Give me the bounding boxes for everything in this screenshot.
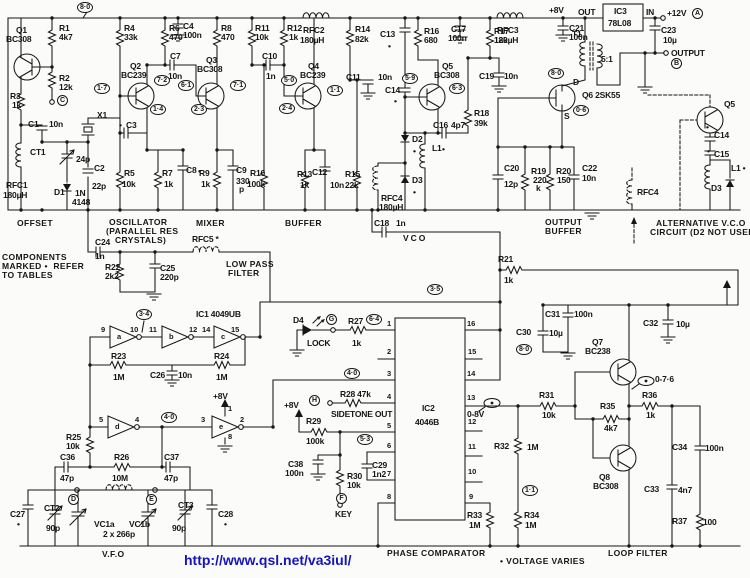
label-c12-value: 10n [330, 181, 344, 190]
label-c28: C28 [218, 510, 233, 519]
label-r5-value: 10k [122, 180, 136, 189]
ic1-gate-d: d [115, 423, 120, 431]
label-c4-value: 100n [183, 31, 202, 40]
terminal-d: D [68, 494, 79, 505]
label-r10: R10 [250, 169, 265, 178]
label-c24-value: 1n [95, 252, 105, 261]
label-output: OUTPUT [671, 49, 705, 58]
label-c2-value: 22p [92, 182, 106, 191]
section-output-buffer-2: BUFFER [545, 227, 582, 236]
label-r35: R35 [600, 402, 615, 411]
section-offset: OFFSET [17, 219, 53, 228]
label-c31: C31 [545, 310, 560, 319]
label-c17-value: 100n [448, 34, 467, 43]
label-d4: D4 [293, 316, 303, 325]
label-c30-value: 10µ [549, 329, 563, 338]
ic2-pin-12: 12 [468, 418, 476, 426]
voltage-7-2: 7·2 [154, 75, 170, 86]
label-c33: C33 [644, 485, 659, 494]
label-c32-value: 10µ [676, 320, 690, 329]
label-r29-value: 100k [306, 437, 324, 446]
label-c11: C11 [346, 73, 361, 82]
label-ic3-type: 78L08 [608, 19, 631, 28]
label-r13-value: 1k [300, 181, 309, 190]
label-r27-value: 1k [352, 339, 361, 348]
label-t1-ratio: 5:1 [601, 55, 613, 64]
voltage-6-3: 6·3 [449, 83, 465, 94]
label-r20-value: 150 [557, 176, 571, 185]
label-vc1b: VC1b [129, 520, 150, 529]
ic2-pin-8: 8 [387, 493, 391, 501]
label-r9-value: 1k [201, 180, 210, 189]
label-c33-value: 4n7 [678, 486, 692, 495]
label-r35-value: 4k7 [604, 424, 618, 433]
label-c11-value: 10n [378, 73, 392, 82]
label-c36: C36 [60, 453, 75, 462]
label-r4-value: 33k [124, 33, 138, 42]
label-vc1a: VC1a [94, 520, 114, 529]
label-sidetone: SIDETONE OUT [331, 410, 392, 419]
label-r5: R5 [124, 169, 134, 178]
label-rfc3: RFC3 [497, 26, 518, 35]
label-d2-star: • [413, 147, 416, 156]
label-c31-value: 100n [574, 310, 593, 319]
label-rfc3-value: 180µH [494, 36, 518, 45]
label-r29: R29 [306, 417, 321, 426]
label-c10: C10 [262, 52, 277, 61]
label-q6-source: S [564, 112, 569, 121]
label-d1-type-2: 4148 [72, 198, 90, 207]
label-r33-value: 1M [469, 521, 480, 530]
label-c16-value: 4p7 [451, 121, 465, 130]
label-c27-star: • [17, 520, 20, 529]
voltage-6-4: 6·4 [366, 314, 382, 325]
voltage-4-0-pin3: 4·0 [344, 368, 360, 379]
label-plus8v-sidetone: +8V [284, 401, 299, 410]
label-c14-alt: C14 [714, 131, 729, 140]
label-c26: C26 [150, 371, 165, 380]
label-plus8v-top: +8V [549, 6, 564, 15]
label-vco: V C O [403, 234, 425, 243]
section-buffer: BUFFER [285, 219, 322, 228]
voltage-5-3: 5·3 [357, 434, 373, 445]
terminal-a: A [692, 8, 703, 19]
label-q6-drain: D [573, 78, 579, 87]
voltage-2-3: 2·3 [191, 104, 207, 115]
url-text[interactable]: http://www.qsl.net/va3iul/ [184, 553, 352, 567]
ic1-gate-c: c [221, 333, 225, 341]
ic2-pin-2: 2 [387, 348, 391, 356]
label-q1-type: BC308 [6, 35, 31, 44]
label-r18-value: 39k [474, 119, 488, 128]
label-r31-value: 10k [542, 411, 556, 420]
label-q2-type: BC239 [121, 71, 146, 80]
label-ic2: IC2 [422, 404, 435, 413]
label-r21-value: 1k [504, 276, 513, 285]
ic1-gate-a: a [117, 333, 121, 341]
label-l1-star: • [442, 145, 445, 154]
label-r32: R32 [494, 442, 509, 451]
voltage-3-5: 3·5 [427, 284, 443, 295]
label-r23: R23 [111, 352, 126, 361]
label-c13: C13 [380, 30, 395, 39]
label-r33: R33 [467, 511, 482, 520]
label-d3-alt: D3 [711, 184, 721, 193]
label-rfc5: RFC5 * [192, 235, 219, 244]
ic2-pin-15: 15 [468, 348, 476, 356]
label-r3-value: 1k [12, 101, 21, 110]
ic2-pin-16: 16 [467, 320, 475, 328]
section-loop-filter: LOOP FILTER [608, 549, 668, 558]
label-c23: C23 [661, 26, 676, 35]
label-r36-value: 1k [646, 411, 655, 420]
label-r27: R27 [348, 317, 363, 326]
label-c37-value: 47p [164, 474, 178, 483]
ic1-pin-11: 11 [149, 326, 157, 334]
label-ct1-value: 24p [76, 155, 90, 164]
voltage-1-1-q4: 1·1 [327, 85, 343, 96]
label-0-7-6: 0-7·6 [655, 375, 674, 384]
label-r34: R34 [524, 511, 539, 520]
label-c36-value: 47p [60, 474, 74, 483]
label-c23-value: 10µ [663, 36, 677, 45]
schematic-page: OFFSETOSCILLATOR(PARALLEL RESCRYSTALS)MI… [0, 0, 750, 578]
label-c18-value: 1n [396, 219, 406, 228]
ic1-pin-14: 14 [202, 326, 210, 334]
label-r8-value: 470 [221, 33, 235, 42]
voltage-8-0-rail: 8·0 [77, 2, 93, 13]
label-r15-value: 22k [345, 181, 359, 190]
voltage-5-0: 5·0 [281, 75, 297, 86]
label-c7-value: 10n [168, 72, 182, 81]
terminal-b: B [671, 58, 682, 69]
label-c3: C3 [126, 121, 136, 130]
label-c20-value: 12p [504, 180, 518, 189]
label-q8-type: BC308 [593, 482, 618, 491]
voltage-7-1: 7·1 [230, 80, 246, 91]
label-c26-value: 10n [178, 371, 192, 380]
label-x1: X1 [97, 111, 107, 120]
label-r7: R7 [162, 169, 172, 178]
ic1-pin-3: 3 [201, 416, 205, 424]
label-c30: C30 [516, 328, 531, 337]
label-d1: D1 [54, 188, 64, 197]
voltage-1-7: 1·7 [94, 83, 110, 94]
label-plus8v-inverter: +8V [213, 392, 228, 401]
label-c18: C18 [374, 219, 389, 228]
label-r26-value: 10M [112, 474, 128, 483]
terminal-e: E [146, 494, 157, 505]
label-d3: D3 [412, 176, 422, 185]
ic1-pin-12: 12 [189, 326, 197, 334]
label-r19-value-2: k [536, 184, 541, 193]
ic1-gate-e: e [219, 423, 223, 431]
label-ct1: CT1 [30, 148, 45, 157]
ic1-pin-5: 5 [99, 416, 103, 424]
label-q3-type: BC308 [197, 65, 222, 74]
label-ic3: IC3 [614, 7, 627, 16]
label-r24-value: 1M [216, 373, 227, 382]
ic1-pin-9: 9 [101, 326, 105, 334]
label-q4-type: BC239 [300, 71, 325, 80]
ic2-pin-11: 11 [468, 443, 476, 451]
label-r2-value: 12k [59, 83, 73, 92]
voltage-2-4: 2·4 [279, 103, 295, 114]
ic1-gate-b: b [169, 333, 174, 341]
ic2-pin-1: 1 [387, 320, 391, 328]
label-c34: C34 [672, 443, 687, 452]
label-c22-value: 10n [582, 174, 596, 183]
label-r1-value: 4k7 [59, 33, 73, 42]
voltage-1-4: 1·4 [150, 104, 166, 115]
voltage-5-9: 5·9 [402, 73, 418, 84]
voltage-8-0-q6: 8·0 [548, 68, 564, 79]
terminal-h: H [309, 395, 320, 406]
label-r24: R24 [214, 352, 229, 361]
ic1-pin-8: 8 [228, 433, 232, 441]
label-c15-alt-star: • [707, 147, 710, 156]
label-r26: R26 [114, 453, 129, 462]
label-c14: C14 [385, 86, 400, 95]
label-ic1: IC1 4049UB [196, 310, 241, 319]
label-c2: C2 [94, 164, 104, 173]
label-c19: C19 [479, 72, 494, 81]
ic1-pin-15: 15 [231, 326, 239, 334]
label-r25-value: 10k [66, 442, 80, 451]
section-low-pass-2: FILTER [228, 269, 260, 278]
label-c27: C27 [10, 510, 25, 519]
section-oscillator-3: CRYSTALS) [115, 236, 166, 245]
label-r16-value: 680 [424, 36, 438, 45]
note-alt-vco-2: CIRCUIT (D2 NOT USED) [650, 228, 750, 237]
label-r37-value: 100 [703, 518, 717, 527]
label-d2: D2 [412, 135, 422, 144]
label-r15: R15 [345, 170, 360, 179]
label-c9: C9 [236, 166, 246, 175]
label-lock: LOCK [307, 339, 330, 348]
label-ct3: CT3 [178, 501, 193, 510]
ic2-pin-9: 9 [469, 493, 473, 501]
label-rfc1-value: 180µH [3, 191, 27, 200]
ic1-pin-10: 10 [130, 326, 138, 334]
label-r14: R14 [355, 25, 370, 34]
label-c1: C1 [28, 120, 38, 129]
note-voltage-varies: • VOLTAGE VARIES [500, 557, 585, 566]
label-r23-value: 1M [113, 373, 124, 382]
ic2-pin-13: 13 [467, 394, 475, 402]
label-c32: C32 [643, 319, 658, 328]
terminal-c: C [57, 95, 68, 106]
label-t1: T1 [572, 30, 582, 39]
ic2-pin-3: 3 [387, 370, 391, 378]
label-ic3-out: OUT [578, 8, 595, 17]
ic1-pin-4: 4 [135, 416, 139, 424]
label-r22-value: 2k2 [105, 272, 119, 281]
label-c15-alt: C15 [714, 150, 729, 159]
ic2-pin-6: 6 [387, 442, 391, 450]
label-c10-value: 1n [266, 72, 276, 81]
voltage-0-6: 0·6 [573, 105, 589, 116]
note-components-3: TO TABLES [2, 271, 53, 280]
ic2-pin-14: 14 [467, 370, 475, 378]
voltage-8-0-c30: 8·0 [516, 344, 532, 355]
ic2-pin-7: 7 [387, 470, 391, 478]
label-rfc4-value: 180µH [379, 203, 403, 212]
label-c24: C24 [95, 238, 110, 247]
label-c14-star: • [394, 97, 397, 106]
label-rfc2: RFC2 [303, 26, 324, 35]
label-c19-value: 10n [504, 72, 518, 81]
label-rfc4-alt: RFC4 [637, 188, 658, 197]
label-c22: C22 [582, 164, 597, 173]
ic1-pin-2: 2 [240, 416, 244, 424]
voltage-1-1-r32: 1·1 [522, 485, 538, 496]
label-q6: Q6 2SK55 [582, 91, 620, 100]
section-vfo: V.F.O [102, 550, 124, 559]
label-q5-alt: Q5 [724, 100, 735, 109]
section-mixer: MIXER [196, 219, 225, 228]
label-r12-value: 1k [289, 33, 298, 42]
label-r30-value: 10k [347, 481, 361, 490]
label-l1-alt: L1 • [731, 164, 745, 173]
voltage-3-4: 3·4 [136, 309, 152, 320]
label-c34-value: 100n [705, 444, 724, 453]
label-r36: R36 [642, 391, 657, 400]
label-c20: C20 [504, 164, 519, 173]
section-phase-comparator: PHASE COMPARATOR [387, 549, 486, 558]
label-c29-value: 1n2 [372, 470, 386, 479]
label-ic3-in: IN [646, 8, 654, 17]
label-c12: C12 [312, 168, 327, 177]
label-c8: C8 [186, 166, 196, 175]
label-c25-value: 220p [160, 273, 179, 282]
label-r18: R18 [474, 109, 489, 118]
label-ic2-type: 4046B [415, 418, 439, 427]
label-c13-star: • [388, 42, 391, 51]
label-r31: R31 [539, 391, 554, 400]
label-r28: R28 47k [340, 390, 371, 399]
voltage-6-1: 6·1 [178, 80, 194, 91]
label-r13: R13 [297, 170, 312, 179]
label-ct3-value: 90p [172, 524, 186, 533]
label-c16: C16 [433, 121, 448, 130]
label-ct2: CT2 [44, 504, 59, 513]
voltage-4-0-vfo: 4·0 [161, 412, 177, 423]
schematic-labels: OFFSETOSCILLATOR(PARALLEL RESCRYSTALS)MI… [0, 0, 750, 578]
label-c1-value: 10n [49, 120, 63, 129]
label-key: KEY [335, 510, 352, 519]
label-rfc1: RFC1 [6, 181, 27, 190]
label-d3-star: • [413, 188, 416, 197]
label-r7-value: 1k [164, 180, 173, 189]
terminal-g: G [326, 314, 337, 325]
terminal-f: F [336, 493, 347, 504]
label-r14-value: 82k [355, 35, 369, 44]
label-r11-value: 10k [255, 33, 269, 42]
label-c14-alt-star: • [706, 123, 709, 132]
label-rfc2-value: 180µH [300, 36, 324, 45]
label-q7-type: BC238 [585, 347, 610, 356]
label-plus12v: +12V [667, 9, 686, 18]
label-l1: L1 [432, 144, 442, 153]
label-c28-star: • [224, 520, 227, 529]
ic2-pin-10: 10 [468, 468, 476, 476]
label-r21: R21 [498, 255, 513, 264]
label-r37: R37 [672, 517, 687, 526]
label-r10-value: 100k [247, 180, 265, 189]
ic2-pin-4: 4 [387, 393, 391, 401]
ic2-pin-5: 5 [387, 422, 391, 430]
label-vc1-value: 2 x 266p [103, 530, 135, 539]
label-r9: R9 [199, 169, 209, 178]
label-c7: C7 [170, 52, 180, 61]
label-c3-star: • [119, 121, 122, 130]
label-c9-value-2: p [239, 185, 244, 194]
label-ct2-value: 90p [46, 524, 60, 533]
label-r32-value: 1M [527, 443, 538, 452]
label-q5-type: BC308 [434, 71, 459, 80]
label-c38-value: 100n [285, 469, 304, 478]
label-c37: C37 [164, 453, 179, 462]
ic1-pin-1: 1 [228, 405, 232, 413]
label-r6-value: 470 [169, 33, 183, 42]
label-r34-value: 1M [525, 521, 536, 530]
